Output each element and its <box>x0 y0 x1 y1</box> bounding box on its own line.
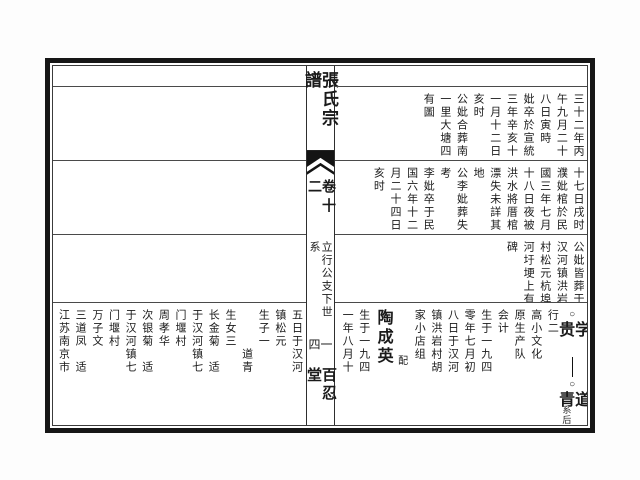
hall-name: 百忍堂 <box>305 367 335 421</box>
spine-column: 張氏宗譜 卷十二 立行公支下世系 一四 百忍堂 <box>306 66 335 425</box>
text-column: 次银菊 适 <box>140 309 153 374</box>
text-column: 午九月二十 <box>555 93 568 158</box>
text-column: 妣卒於宣統 <box>521 93 534 158</box>
volume-label: 卷十二 <box>306 179 334 235</box>
right-register-1: 三十二年丙午九月二十八日寅時妣卒於宣統三年辛亥十一月十二日亥时公妣合葬南一里大塘… <box>335 87 588 161</box>
page-frame: 五日于汉河镇松元生子一 道青生女三长金菊 适于汉河镇七门堰村周孝华次银菊 适于汉… <box>45 58 595 433</box>
text-column: 镇松元 <box>273 309 286 348</box>
left-register-4: 五日于汉河镇松元生子一 道青生女三长金菊 适于汉河镇七门堰村周孝华次银菊 适于汉… <box>53 303 306 425</box>
text-column: 八日寅時 <box>538 93 551 145</box>
text-column: 有圖 <box>422 93 435 119</box>
page-layout: 五日于汉河镇松元生子一 道青生女三长金菊 适于汉河镇七门堰村周孝华次银菊 适于汉… <box>53 66 587 425</box>
right-register-2: 十七日戌时濮妣棺於民國三年七月十八日夜被洪水將厝棺漂失未詳其地公李妣葬失考李妣卒… <box>335 161 588 235</box>
right-half-page: 三十二年丙午九月二十八日寅時妣卒於宣統三年辛亥十一月十二日亥时公妣合葬南一里大塘… <box>335 66 588 425</box>
right-register-3-text: 公妣皆葬于汉河镇洪岩村松元杭埠河圩埂上有碑 <box>337 241 585 303</box>
text-column: 地 <box>472 167 485 180</box>
text-column: 零年七月初 <box>463 309 476 374</box>
text-column: 长金菊 适 <box>207 309 220 374</box>
text-column: 河圩埂上有 <box>521 241 534 303</box>
text-column: 八日于汉河 <box>446 309 459 374</box>
text-column: 生子一 <box>257 309 270 348</box>
fishtail-mark-icon <box>307 151 334 175</box>
left-top-strip <box>53 66 306 87</box>
lineage-connector-line <box>572 357 573 376</box>
lineage-parent-name: 学贵 <box>556 321 587 355</box>
folio-number: 一四 <box>308 338 332 368</box>
text-column: 村松元杭埠 <box>538 241 551 303</box>
book-title: 張氏宗譜 <box>303 71 337 146</box>
text-column: 一月十二日 <box>488 93 501 158</box>
text-column: 国六年十二 <box>405 167 418 232</box>
text-column: 于汉河镇七 <box>123 309 136 374</box>
inner-frame: 五日于汉河镇松元生子一 道青生女三长金菊 适于汉河镇七门堰村周孝华次银菊 适于汉… <box>52 65 588 426</box>
text-column: 镇洪岩村胡 <box>429 309 442 374</box>
spouse-label: 配 <box>394 309 409 365</box>
text-column: 生于一九四 <box>479 309 492 374</box>
left-half-page: 五日于汉河镇松元生子一 道青生女三长金菊 适于汉河镇七门堰村周孝华次银菊 适于汉… <box>53 66 306 425</box>
lineage-chart-column: ○ 学贵 ○ 道青 系后 <box>560 309 584 425</box>
text-column: 公李妣葬失 <box>455 167 468 232</box>
text-column: 汉河镇洪岩 <box>555 241 568 303</box>
text-column: 月二十四日 <box>388 167 401 232</box>
text-column: 一里大塘四 <box>438 93 451 158</box>
text-column: 原生产队 <box>512 309 525 361</box>
text-column: 生于一九四 <box>357 309 370 374</box>
text-column: 三年辛亥十 <box>505 93 518 158</box>
section-label: 立行公支下世系 <box>308 241 332 331</box>
text-column: 门堰村 <box>107 309 120 348</box>
right-register-4-row: ○ 学贵 ○ 道青 系后 行二高小文化原生产队会计生于一九四零年七月初八日于汉河… <box>337 309 585 425</box>
text-column: 于汉河镇七 <box>190 309 203 374</box>
text-column: 门堰村 <box>173 309 186 348</box>
text-column: 家小店组 <box>413 309 426 361</box>
genealogy-page: 五日于汉河镇松元生子一 道青生女三长金菊 适于汉河镇七门堰村周孝华次银菊 适于汉… <box>0 0 640 480</box>
text-column: 生女三 <box>223 309 236 348</box>
left-register-4-text: 五日于汉河镇松元生子一 道青生女三长金菊 适于汉河镇七门堰村周孝华次银菊 适于汉… <box>55 309 303 374</box>
lineage-circle-icon: ○ <box>569 380 575 390</box>
text-column: 十八日夜被 <box>521 167 534 232</box>
text-column: 周孝华 <box>157 309 170 348</box>
text-column: 公妣合葬南 <box>455 93 468 158</box>
text-column: 一年八月十 <box>341 309 354 374</box>
right-register-4: ○ 学贵 ○ 道青 系后 行二高小文化原生产队会计生于一九四零年七月初八日于汉河… <box>335 303 588 425</box>
lineage-note: 系后 <box>560 405 573 425</box>
right-register-3: 公妣皆葬于汉河镇洪岩村松元杭埠河圩埂上有碑 <box>335 235 588 303</box>
text-column: 会计 <box>496 309 509 335</box>
text-column: 公妣皆葬于 <box>571 241 584 303</box>
text-column: 十七日戌时 <box>571 167 584 232</box>
text-column: 亥时 <box>372 167 385 193</box>
right-register-2-text: 十七日戌时濮妣棺於民國三年七月十八日夜被洪水將厝棺漂失未詳其地公李妣葬失考李妣卒… <box>337 167 585 232</box>
left-register-3 <box>53 235 306 303</box>
text-column: 万子文 <box>90 309 103 348</box>
text-column: 考 <box>438 167 451 180</box>
biography-columns: 行二高小文化原生产队会计生于一九四零年七月初八日于汉河镇洪岩村胡家小店组 <box>409 309 559 374</box>
text-column: 碑 <box>505 241 518 254</box>
spouse-name: 陶成英 <box>374 309 391 366</box>
right-top-strip <box>335 66 588 87</box>
text-column: 濮妣棺於民 <box>555 167 568 232</box>
text-column: 漂失未詳其 <box>488 167 501 232</box>
spouse-birth-columns: 生于一九四一年八月十 <box>337 309 370 374</box>
text-column: 道青 <box>240 309 253 374</box>
text-column: 江苏南京市 <box>57 309 70 374</box>
text-column: 高小文化 <box>529 309 542 361</box>
text-column: 五日于汉河 <box>290 309 303 374</box>
text-column: 三道凤 适 <box>74 309 87 374</box>
text-column: 洪水將厝棺 <box>505 167 518 232</box>
left-register-2 <box>53 161 306 235</box>
lineage-circle-icon: ○ <box>569 310 575 320</box>
text-column: 三十二年丙 <box>571 93 584 158</box>
text-column: 李妣卒于民 <box>422 167 435 232</box>
text-column: 國三年七月 <box>538 167 551 232</box>
left-register-1 <box>53 87 306 161</box>
text-column: 亥时 <box>472 93 485 119</box>
right-register-1-text: 三十二年丙午九月二十八日寅時妣卒於宣統三年辛亥十一月十二日亥时公妣合葬南一里大塘… <box>337 93 585 158</box>
